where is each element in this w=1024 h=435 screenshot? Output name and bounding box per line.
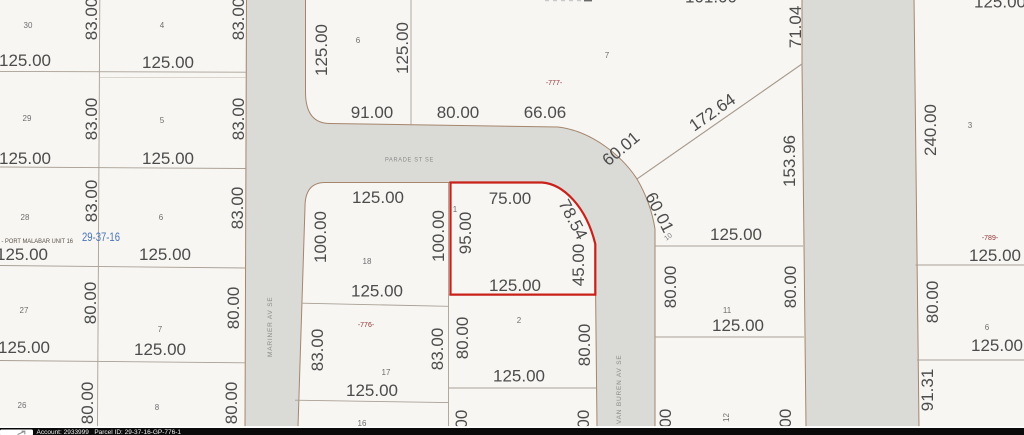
svg-text:95.00: 95.00 [456,212,475,255]
svg-text:101.00: 101.00 [685,0,737,7]
svg-text:80.00: 80.00 [575,324,594,367]
svg-text:125.00: 125.00 [971,336,1023,355]
svg-text:7: 7 [605,51,610,60]
svg-text:125.00: 125.00 [974,0,1024,12]
svg-text:1: 1 [453,205,458,214]
svg-text:125.00: 125.00 [312,24,331,76]
svg-text:- PORT MALABAR UNIT 16: - PORT MALABAR UNIT 16 [2,238,74,245]
svg-text:80.00: 80.00 [81,282,100,325]
svg-text:125.00: 125.00 [0,245,48,264]
svg-text:125.00: 125.00 [0,51,51,70]
svg-text:80.00: 80.00 [453,317,472,360]
svg-text:17: 17 [382,368,391,377]
svg-text:83.00: 83.00 [229,98,248,141]
svg-text:153.96: 153.96 [780,135,799,187]
svg-text:6: 6 [356,36,361,45]
svg-text:29: 29 [23,114,32,123]
svg-text:125.00: 125.00 [134,340,186,359]
svg-text:-789-: -789- [982,235,999,242]
svg-text:125.00: 125.00 [0,338,50,357]
svg-text:11: 11 [723,306,732,315]
svg-text:125.00: 125.00 [139,245,191,264]
svg-text:71.04: 71.04 [786,6,805,49]
svg-text:-776-: -776- [358,322,375,329]
svg-text:6: 6 [985,323,990,332]
svg-text:-777-: -777- [546,80,563,87]
svg-text:91.31: 91.31 [918,369,937,412]
svg-text:26: 26 [18,401,27,410]
svg-text:125.00: 125.00 [0,149,51,168]
svg-text:125.00: 125.00 [712,316,764,335]
svg-text:125.00: 125.00 [352,188,404,207]
svg-text:83.00: 83.00 [82,0,101,40]
svg-text:2: 2 [517,316,522,325]
svg-text:83.00: 83.00 [228,187,247,230]
svg-text:18: 18 [363,257,372,266]
svg-text:125.00: 125.00 [710,225,762,244]
svg-text:83.00: 83.00 [82,98,101,141]
svg-text:4: 4 [160,21,165,30]
svg-text:3: 3 [968,121,973,130]
svg-text:125.00: 125.00 [489,276,541,295]
svg-text:30: 30 [24,21,33,30]
svg-text:80.00: 80.00 [781,266,800,309]
svg-text:8: 8 [155,403,160,412]
svg-text:125.00: 125.00 [393,22,412,74]
svg-text:Account: 2933999 Parcel ID:: Account: 2933999 Parcel ID: 29-37-16-GP-… [37,429,182,435]
svg-text:80.00: 80.00 [661,266,680,309]
svg-text:7: 7 [158,325,163,334]
svg-text:100.00: 100.00 [429,210,448,262]
svg-text:80.00: 80.00 [437,103,480,122]
svg-text:125.00: 125.00 [346,381,398,400]
svg-text:125.00: 125.00 [351,282,403,301]
svg-text:12: 12 [722,413,731,422]
svg-text:MARINER AV SE: MARINER AV SE [267,297,274,358]
svg-text:28: 28 [21,213,30,222]
svg-text:80.00: 80.00 [78,382,97,425]
svg-text:80.00: 80.00 [224,287,243,330]
svg-text:125.00: 125.00 [142,149,194,168]
svg-text:PARADE ST SE: PARADE ST SE [385,157,434,164]
svg-text:83.00: 83.00 [428,328,447,371]
svg-text:125.00: 125.00 [493,367,545,386]
svg-text:27: 27 [20,306,29,315]
svg-text:29-37-16: 29-37-16 [82,230,120,244]
svg-text:83.00: 83.00 [308,329,327,372]
svg-text:83.00: 83.00 [229,0,248,40]
svg-text:5: 5 [160,116,165,125]
svg-text:83.00: 83.00 [82,180,101,223]
svg-text:VAN BUREN AV SE: VAN BUREN AV SE [616,354,623,424]
svg-text:100.00: 100.00 [311,211,330,263]
svg-text:80.00: 80.00 [923,281,942,324]
svg-text:125.00: 125.00 [142,53,194,72]
svg-text:45.00: 45.00 [569,244,588,287]
svg-text:91.00: 91.00 [351,103,394,122]
svg-text:125.00: 125.00 [969,246,1021,265]
svg-text:80.00: 80.00 [222,382,241,425]
svg-text:66.06: 66.06 [524,103,567,122]
svg-text:240.00: 240.00 [921,104,940,156]
svg-text:75.00: 75.00 [489,189,532,208]
svg-text:6: 6 [159,213,164,222]
